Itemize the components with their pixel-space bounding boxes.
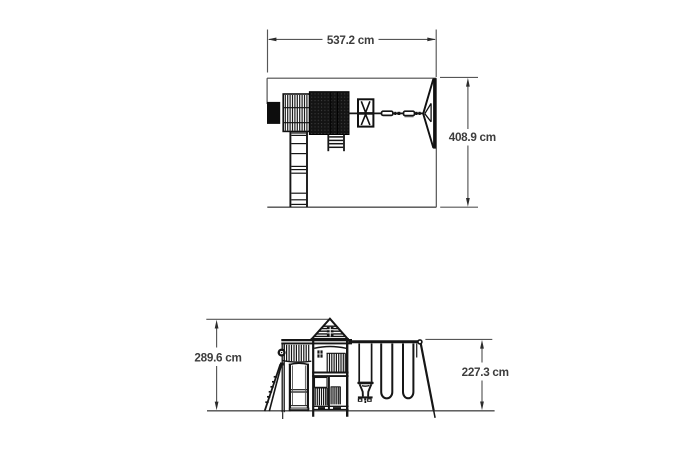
svg-text:289.6 cm: 289.6 cm	[194, 351, 241, 364]
svg-text:227.3 cm: 227.3 cm	[462, 366, 509, 379]
svg-text:537.2 cm: 537.2 cm	[327, 34, 374, 47]
svg-text:408.9 cm: 408.9 cm	[449, 131, 496, 144]
